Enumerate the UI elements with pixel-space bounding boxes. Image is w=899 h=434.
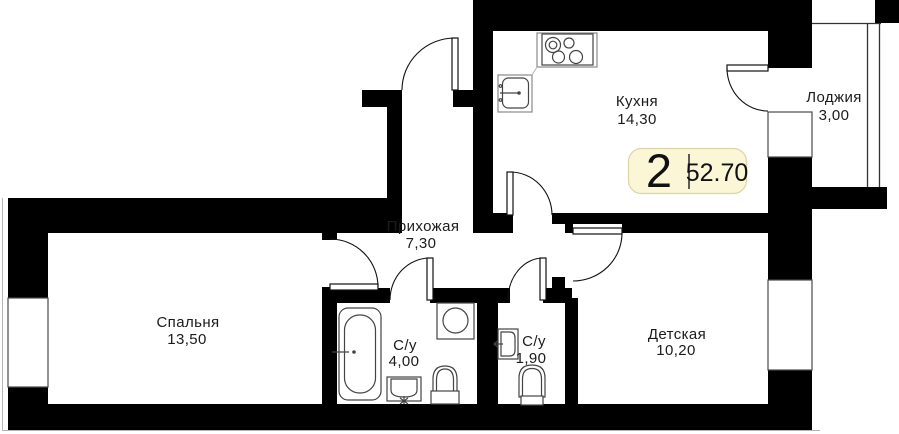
loggia-label: Лоджия (806, 89, 862, 106)
children-door (573, 228, 622, 281)
balcony-door (727, 65, 768, 111)
badge-rooms-count: 2 (646, 144, 672, 197)
children-window (768, 280, 812, 370)
kitchen-label: Кухня (616, 93, 658, 110)
bathroom-label: С/у (393, 337, 417, 354)
toilet-icon (431, 366, 459, 404)
bathtub-icon (332, 308, 381, 400)
bathroom-area: 4,00 (389, 353, 420, 370)
stove-icon (542, 34, 593, 65)
wc-label: С/у (522, 333, 546, 350)
wall-sink-icon (494, 329, 518, 359)
kitchen-area: 14,30 (617, 111, 657, 128)
bedroom-window (8, 298, 48, 387)
bedroom-label: Спальня (156, 314, 219, 331)
floorplan-drawing: Кухня 14,30 Лоджия 3,00 Прихожая 7,30 Сп… (0, 0, 899, 434)
washing-machine-icon (437, 303, 474, 339)
floorplan: Кухня 14,30 Лоджия 3,00 Прихожая 7,30 Сп… (0, 0, 899, 434)
pedestal-sink-icon (387, 377, 421, 404)
bathroom-door (390, 258, 433, 300)
wc-area: 1,90 (516, 350, 547, 367)
kitchen-door (507, 172, 552, 215)
hallway-area: 7,30 (406, 235, 437, 252)
children-label: Детская (648, 326, 706, 343)
summary-badge: 2 52.70 (629, 144, 749, 197)
kitchen-loggia-window (768, 112, 812, 157)
toilet-icon-2 (519, 365, 545, 405)
loggia-area: 3,00 (819, 107, 850, 124)
hallway-label: Прихожая (387, 218, 460, 235)
entrance-door (402, 38, 458, 90)
kitchen-sink-icon (499, 78, 528, 108)
badge-total-area: 52.70 (686, 159, 749, 187)
wc-door (508, 258, 546, 300)
bedroom-door (330, 239, 378, 290)
children-area: 10,20 (656, 342, 696, 359)
bedroom-area: 13,50 (167, 331, 207, 348)
